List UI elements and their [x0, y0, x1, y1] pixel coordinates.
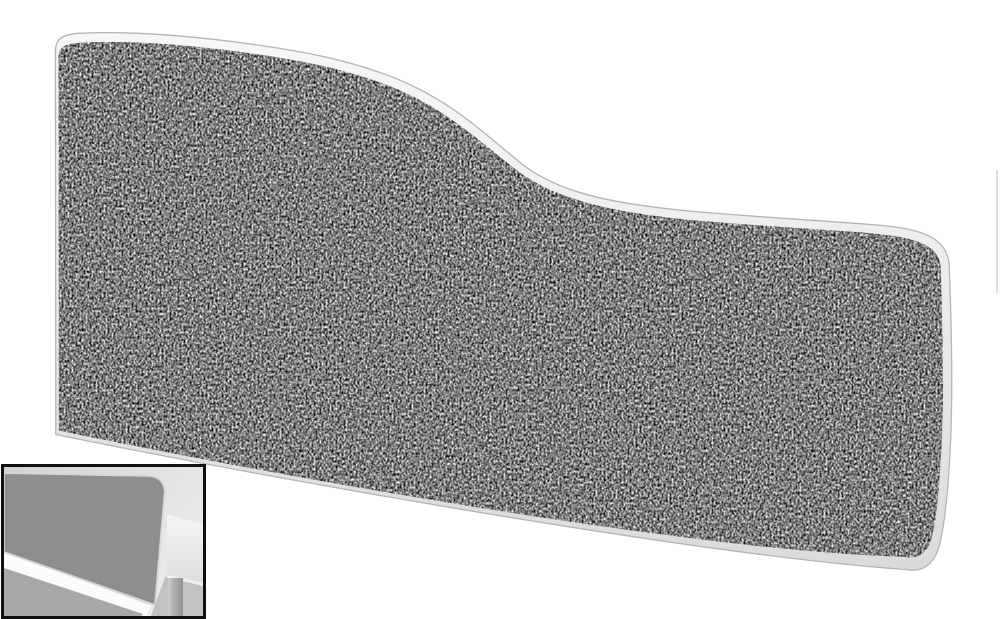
installation-inset-thumbnail[interactable] [1, 464, 206, 619]
inset-desk-leg [168, 578, 183, 616]
inset-scene [1, 464, 206, 619]
inset-desk-surface [167, 514, 203, 583]
right-edge-artifact [996, 170, 998, 293]
product-photo [0, 0, 1000, 619]
